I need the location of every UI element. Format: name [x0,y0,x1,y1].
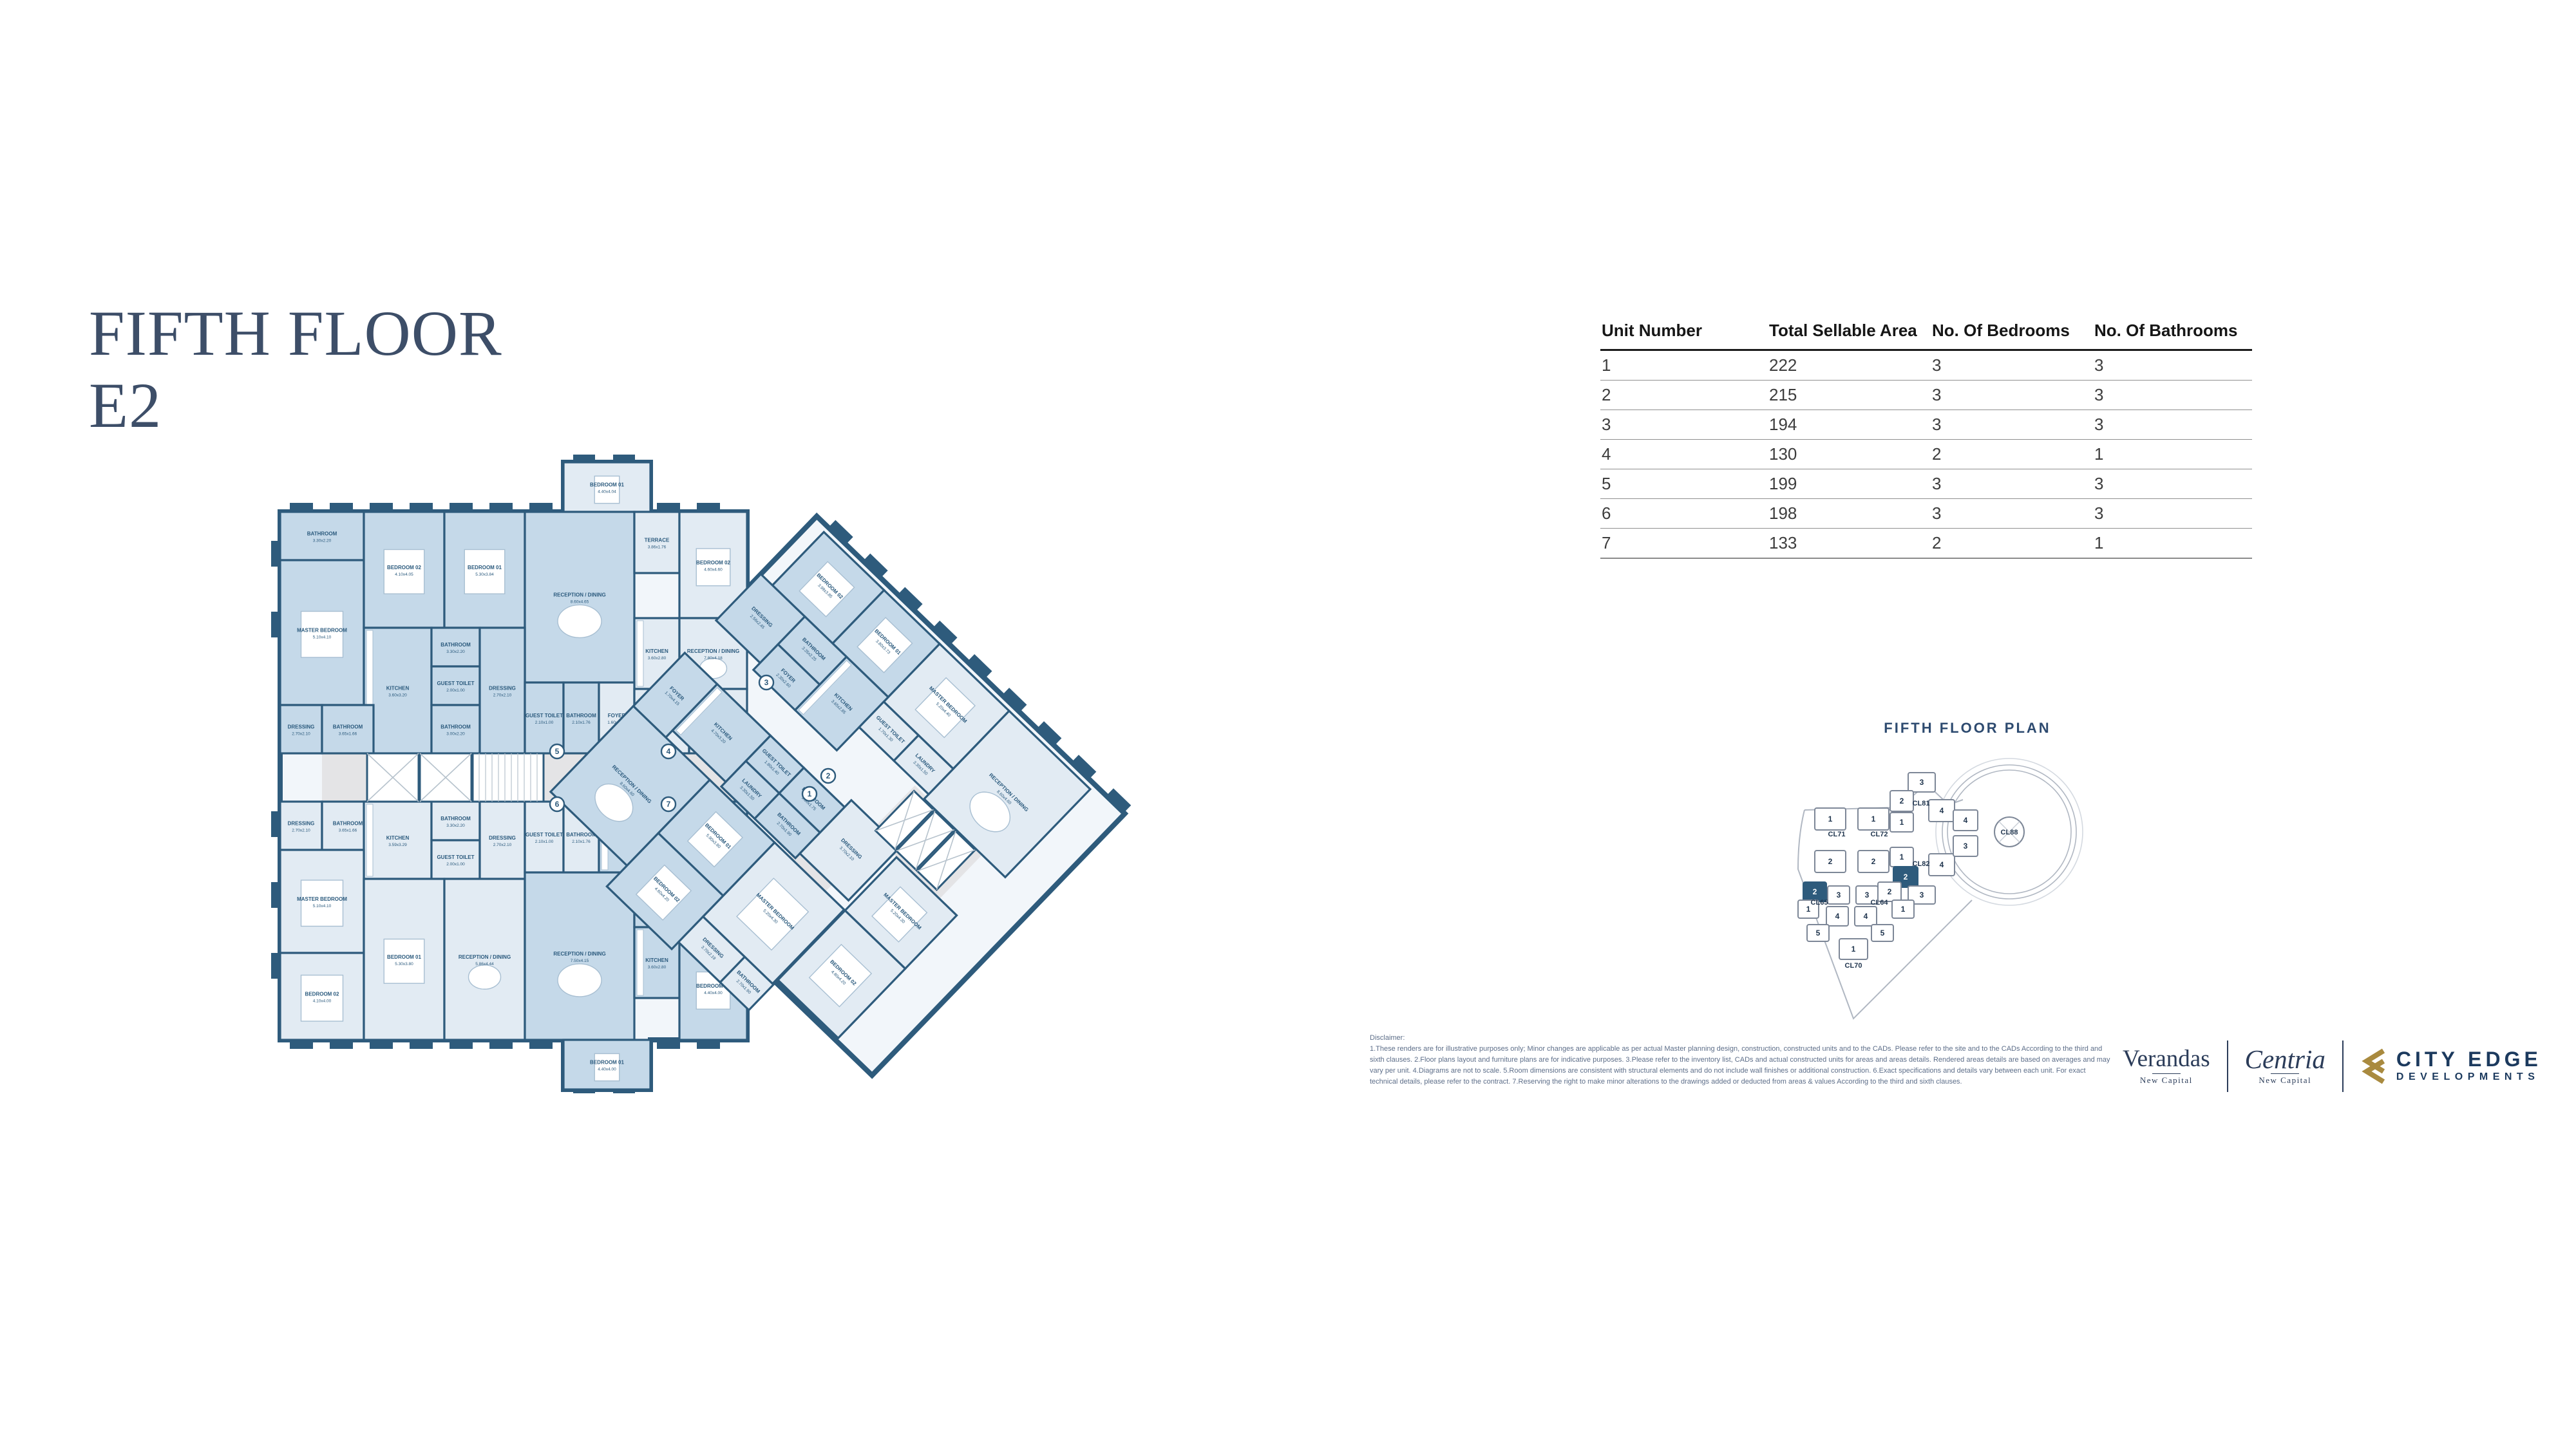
key-plan-drawing: CL881122321414234323145231451CL71CL72CL8… [1797,746,2138,1022]
room-dims: 4.60x4.60 [704,568,723,572]
keyplan-cluster-label: CL82 [1913,860,1930,868]
hub-label: CL88 [2001,829,2018,836]
page-title-line2: E2 [89,370,162,441]
table-cell: 222 [1768,350,1931,381]
table-cell: 1 [2093,440,2252,469]
room-label: KITCHEN [645,648,668,654]
table-cell: 3 [1931,350,2093,381]
room-dims: 2.10x1.76 [572,840,591,844]
room-label: DRESSING [489,835,516,841]
table-cell: 3 [2093,469,2252,499]
keyplan-cluster-label: CL71 [1828,831,1846,838]
room-dims: 2.70x2.10 [292,732,310,737]
keyplan-unit-number: 2 [1888,887,1892,896]
table-cell: 215 [1768,381,1931,410]
room-label: KITCHEN [386,835,410,841]
table-cell: 3 [1931,410,2093,440]
room-dims: 5.10x4.10 [313,904,332,909]
table-row: 619833 [1600,499,2252,529]
room-label: GUEST TOILET [437,681,474,686]
staircase [473,753,544,802]
keyplan-unit-number: 5 [1880,928,1885,937]
room-dims: 5.30x3.84 [475,572,494,577]
table-header-cell: Unit Number [1600,321,1768,350]
table-cell: 6 [1600,499,1768,529]
room-dims: 3.60x3.20 [388,693,407,698]
table-row: 519933 [1600,469,2252,499]
unit-marker-number: 2 [826,771,831,780]
table-row: 713321 [1600,529,2252,559]
bed-icon [464,550,505,594]
keyplan-unit-number: 1 [1871,814,1876,824]
keyplan-unit-number: 1 [1828,814,1833,824]
table-cell: 3 [2093,381,2252,410]
table-cell: 1 [2093,529,2252,559]
keyplan-unit-number: 3 [1964,842,1968,851]
room-dims: 4.40x4.00 [598,1068,616,1072]
table-row: 413021 [1600,440,2252,469]
room-label: GUEST TOILET [437,854,474,860]
keyplan-unit-number: 4 [1964,816,1968,825]
table-cell: 4 [1600,440,1768,469]
room-label: KITCHEN [386,686,410,692]
room-dims: 5.86x4.44 [475,962,494,966]
table-header-cell: No. Of Bathrooms [2093,321,2252,350]
page-title-line1: FIFTH FLOOR [89,297,502,369]
room-label: RECEPTION / DINING [459,954,511,960]
keyplan-unit-number: 3 [1920,890,1924,899]
keyplan-unit-number: 2 [1900,796,1904,805]
centria-logo: Centria New Capital [2245,1047,2325,1086]
room-dims: 2.10x1.00 [535,840,554,844]
kitchen-counter-icon [366,804,373,876]
room-dims: 2.70x2.10 [493,843,512,847]
bed-icon [384,550,424,594]
room-dims: 2.00x1.00 [446,688,465,693]
room-label: TERRACE [645,538,670,543]
keyplan-unit-number: 2 [1828,857,1833,866]
room-label: MASTER BEDROOM [297,896,347,902]
room-label: DRESSING [489,686,516,692]
room-dims: 3.30x2.20 [313,539,332,543]
table-cell: 194 [1768,410,1931,440]
unit-marker-number: 5 [555,747,560,756]
table-header-cell: Total Sellable Area [1768,321,1931,350]
room-dims: 4.10x4.00 [313,999,332,1004]
room-dims: 3.00x2.20 [446,732,465,737]
room-dims: 3.30x2.20 [446,650,465,654]
room-label: RECEPTION / DINING [687,648,739,654]
kitchen-counter-icon [637,621,643,686]
room-dims: 3.59x3.29 [388,843,407,847]
centria-wordmark: Centria [2245,1047,2325,1071]
centria-subtitle: New Capital [2245,1075,2325,1086]
room-dims: 5.30x3.80 [395,962,413,966]
disclaimer-body: 1.These renders are for illustrative pur… [1370,1045,2110,1086]
room-label: BATHROOM [440,642,471,648]
unit-marker-number: 7 [667,800,671,809]
table-cell: 2 [1600,381,1768,410]
cityedge-logo: CITY EDGE DEVELOPMENTS [2360,1048,2542,1085]
keyplan-cluster-label: CL65 [1811,899,1828,907]
table-row: 122233 [1600,350,2252,381]
keyplan-unit-number: 2 [1871,857,1876,866]
keyplan-unit-number: 1 [1851,945,1856,954]
cityedge-name: CITY EDGE [2396,1048,2542,1070]
dining-table-icon [558,964,601,997]
table-cell: 3 [2093,410,2252,440]
logo-divider [2227,1040,2228,1092]
room-label: RECEPTION / DINING [553,592,605,598]
room-dims: 8.60x4.65 [571,600,589,605]
keyplan-unit-number: 3 [1865,890,1870,899]
logo-divider [2342,1040,2344,1092]
site-boundary [1798,810,1972,1019]
keyplan-unit-number: 4 [1835,912,1840,921]
table-row: 319433 [1600,410,2252,440]
table-cell: 3 [1931,381,2093,410]
cityedge-chevrons-icon [2360,1048,2389,1085]
room-dims: 2.10x1.00 [535,720,554,725]
verandas-wordmark: Verandas [2123,1047,2210,1071]
room-label: BEDROOM 02 [305,992,339,997]
kitchen-counter-icon [637,930,643,995]
verandas-logo: Verandas New Capital [2123,1047,2210,1086]
room-dims: 4.40x4.00 [704,991,723,995]
table-cell: 3 [2093,350,2252,381]
keyplan-unit-number: 3 [1837,890,1841,899]
table-cell: 3 [1931,499,2093,529]
room-label: MASTER BEDROOM [297,628,347,634]
floor-plan-drawing: BATHROOM3.30x2.20BEDROOM 014.40x4.04MAST… [270,451,1133,1095]
units-table: Unit NumberTotal Sellable AreaNo. Of Bed… [1600,321,2252,559]
room-label: BATHROOM [440,724,471,730]
room-label: BATHROOM [307,531,337,537]
room-label: RECEPTION / DINING [553,951,605,957]
cityedge-wordmark: CITY EDGE DEVELOPMENTS [2396,1048,2542,1084]
keyplan-cluster-label: CL72 [1871,831,1888,838]
units-table-header-row: Unit NumberTotal Sellable AreaNo. Of Bed… [1600,321,2252,350]
unit-marker-number: 3 [764,678,769,687]
room-label: BEDROOM 01 [590,1060,624,1066]
room-dims: 3.65x1.66 [339,732,357,737]
room-dims: 3.65x1.66 [339,829,357,833]
table-cell: 2 [1931,529,2093,559]
bed-icon [301,975,343,1022]
room-dims: 3.60x2.80 [648,656,667,661]
keyplan-unit-number: 4 [1940,806,1944,815]
table-cell: 5 [1600,469,1768,499]
room-label: BATHROOM [566,713,596,719]
table-header-cell: No. Of Bedrooms [1931,321,2093,350]
room-dims: 4.40x4.04 [598,490,616,494]
unit-marker-number: 6 [555,800,560,809]
table-cell: 7 [1600,529,1768,559]
table-cell: 198 [1768,499,1931,529]
verandas-rule [2152,1073,2181,1074]
room-label: BATHROOM [440,816,471,822]
room-label: GUEST TOILET [526,713,563,719]
table-cell: 3 [1931,469,2093,499]
table-cell: 130 [1768,440,1931,469]
key-plan: FIFTH FLOOR PLAN CL881122321414234323145… [1797,720,2138,1026]
room-dims: 3.30x2.20 [446,824,465,828]
floor-plan: BATHROOM3.30x2.20BEDROOM 014.40x4.04MAST… [270,451,1133,1095]
keyplan-unit-number: 4 [1940,860,1944,869]
room-dims: 7.80x4.18 [704,656,723,661]
room-label: BEDROOM 01 [590,482,624,488]
room-dims: 4.10x4.05 [395,572,413,577]
unit-marker-number: 4 [667,747,671,756]
keyplan-unit-number: 1 [1901,905,1906,914]
room-label: DRESSING [288,821,315,827]
keyplan-unit-number: 4 [1864,912,1868,921]
keyplan-unit-number: 5 [1816,928,1821,937]
room-label: BEDROOM 01 [468,565,502,570]
keyplan-unit-number: 2 [1904,872,1908,881]
cityedge-subtitle: DEVELOPMENTS [2396,1070,2542,1084]
table-cell: 133 [1768,529,1931,559]
table-row: 221533 [1600,381,2252,410]
disclaimer-label: Disclaimer: [1370,1033,2110,1044]
room-label: BEDROOM 02 [387,565,421,570]
room-dims: 2.00x1.00 [446,862,465,867]
room-label: KITCHEN [645,957,668,963]
keyplan-unit-number: 1 [1900,852,1904,862]
room-dims: 3.86x1.76 [648,545,667,550]
brochure-page: FIFTH FLOORE2 Unit NumberTotal Sellable … [0,0,2576,1450]
disclaimer: Disclaimer: 1.These renders are for illu… [1370,1033,2110,1087]
keyplan-unit-number: 2 [1813,887,1817,896]
keyplan-unit-number: 3 [1920,778,1924,787]
dining-table-icon [469,965,501,990]
table-cell: 3 [2093,499,2252,529]
page-title: FIFTH FLOORE2 [89,297,502,442]
room-dims: 5.10x4.10 [313,636,332,640]
keyplan-cluster-label: CL70 [1845,962,1862,970]
bed-icon [301,880,343,927]
bed-icon [301,612,343,658]
room-dims: 2.70x2.10 [292,829,310,833]
table-cell: 1 [1600,350,1768,381]
verandas-subtitle: New Capital [2123,1075,2210,1086]
table-cell: 199 [1768,469,1931,499]
room-label: GUEST TOILET [526,832,563,838]
room-label: BEDROOM 02 [696,560,730,566]
room-label: BEDROOM 01 [387,954,421,960]
table-cell: 2 [1931,440,2093,469]
table-cell: 3 [1600,410,1768,440]
room-dims: 2.70x2.10 [493,693,512,698]
dining-table-icon [558,605,601,637]
key-plan-title: FIFTH FLOOR PLAN [1797,720,2138,737]
room-label: BATHROOM [333,724,363,730]
room-dims: 3.60x2.80 [648,965,667,970]
room-dims: 7.50x4.15 [571,959,589,963]
unit-marker-number: 1 [808,789,812,798]
balcony [657,1039,680,1049]
logo-strip: Verandas New Capital Centria New Capital… [2123,1035,2542,1097]
room-label: DRESSING [288,724,315,730]
keyplan-unit-number: 1 [1900,818,1904,827]
room-dims: 2.10x1.76 [572,720,591,725]
room-label: BATHROOM [333,821,363,827]
keyplan-cluster-label: CL81 [1913,800,1930,807]
bed-icon [384,939,424,984]
keyplan-cluster-label: CL64 [1871,899,1889,907]
